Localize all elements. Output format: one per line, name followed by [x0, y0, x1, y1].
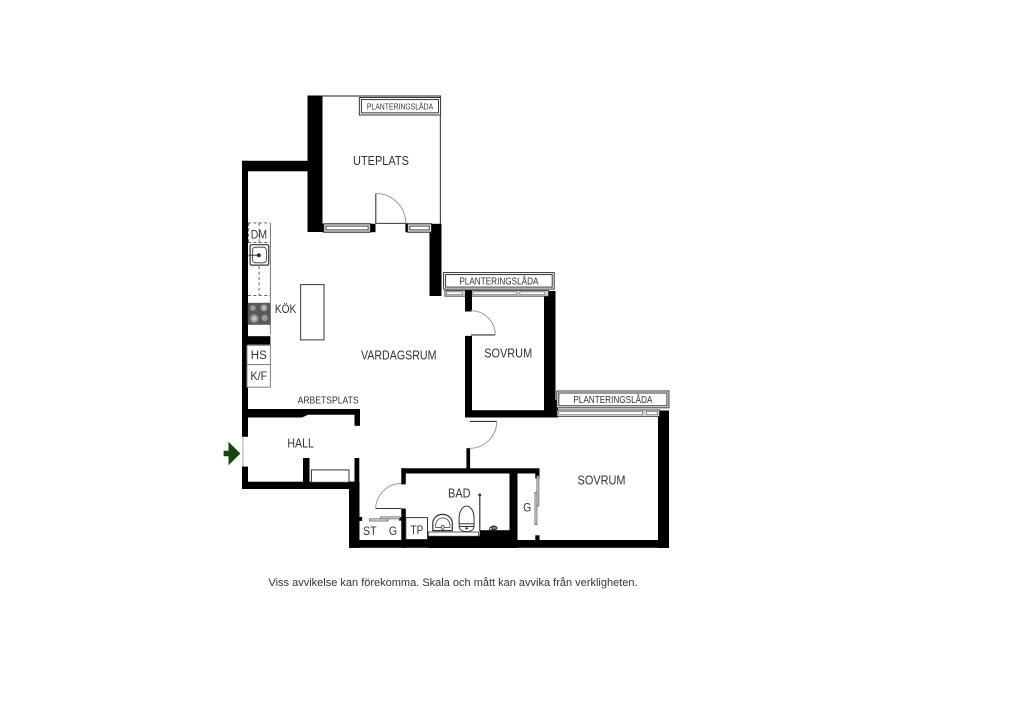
svg-text:G: G: [389, 525, 397, 538]
svg-text:HS: HS: [251, 348, 267, 362]
svg-text:UTEPLATS: UTEPLATS: [353, 153, 409, 168]
svg-text:KÖK: KÖK: [275, 303, 297, 316]
svg-text:DM: DM: [251, 229, 267, 242]
svg-text:ARBETSPLATS: ARBETSPLATS: [298, 395, 359, 407]
svg-text:SOVRUM: SOVRUM: [578, 473, 626, 488]
svg-text:PLANTERINGSLÅDA: PLANTERINGSLÅDA: [573, 394, 653, 405]
svg-text:ST: ST: [363, 525, 377, 538]
svg-text:BAD: BAD: [448, 487, 471, 501]
svg-text:TP: TP: [411, 524, 424, 537]
svg-text:G: G: [523, 502, 531, 515]
svg-text:Viss avvikelse kan förekomma.: Viss avvikelse kan förekomma. Skala och …: [268, 577, 637, 589]
svg-text:PLANTERINGSLÅDA: PLANTERINGSLÅDA: [459, 276, 539, 287]
svg-text:SOVRUM: SOVRUM: [484, 346, 532, 361]
svg-text:HALL: HALL: [287, 437, 314, 451]
svg-text:K/F: K/F: [250, 369, 267, 383]
svg-text:PLANTERINGSLÅDA: PLANTERINGSLÅDA: [367, 102, 434, 112]
svg-text:VARDAGSRUM: VARDAGSRUM: [361, 347, 437, 362]
